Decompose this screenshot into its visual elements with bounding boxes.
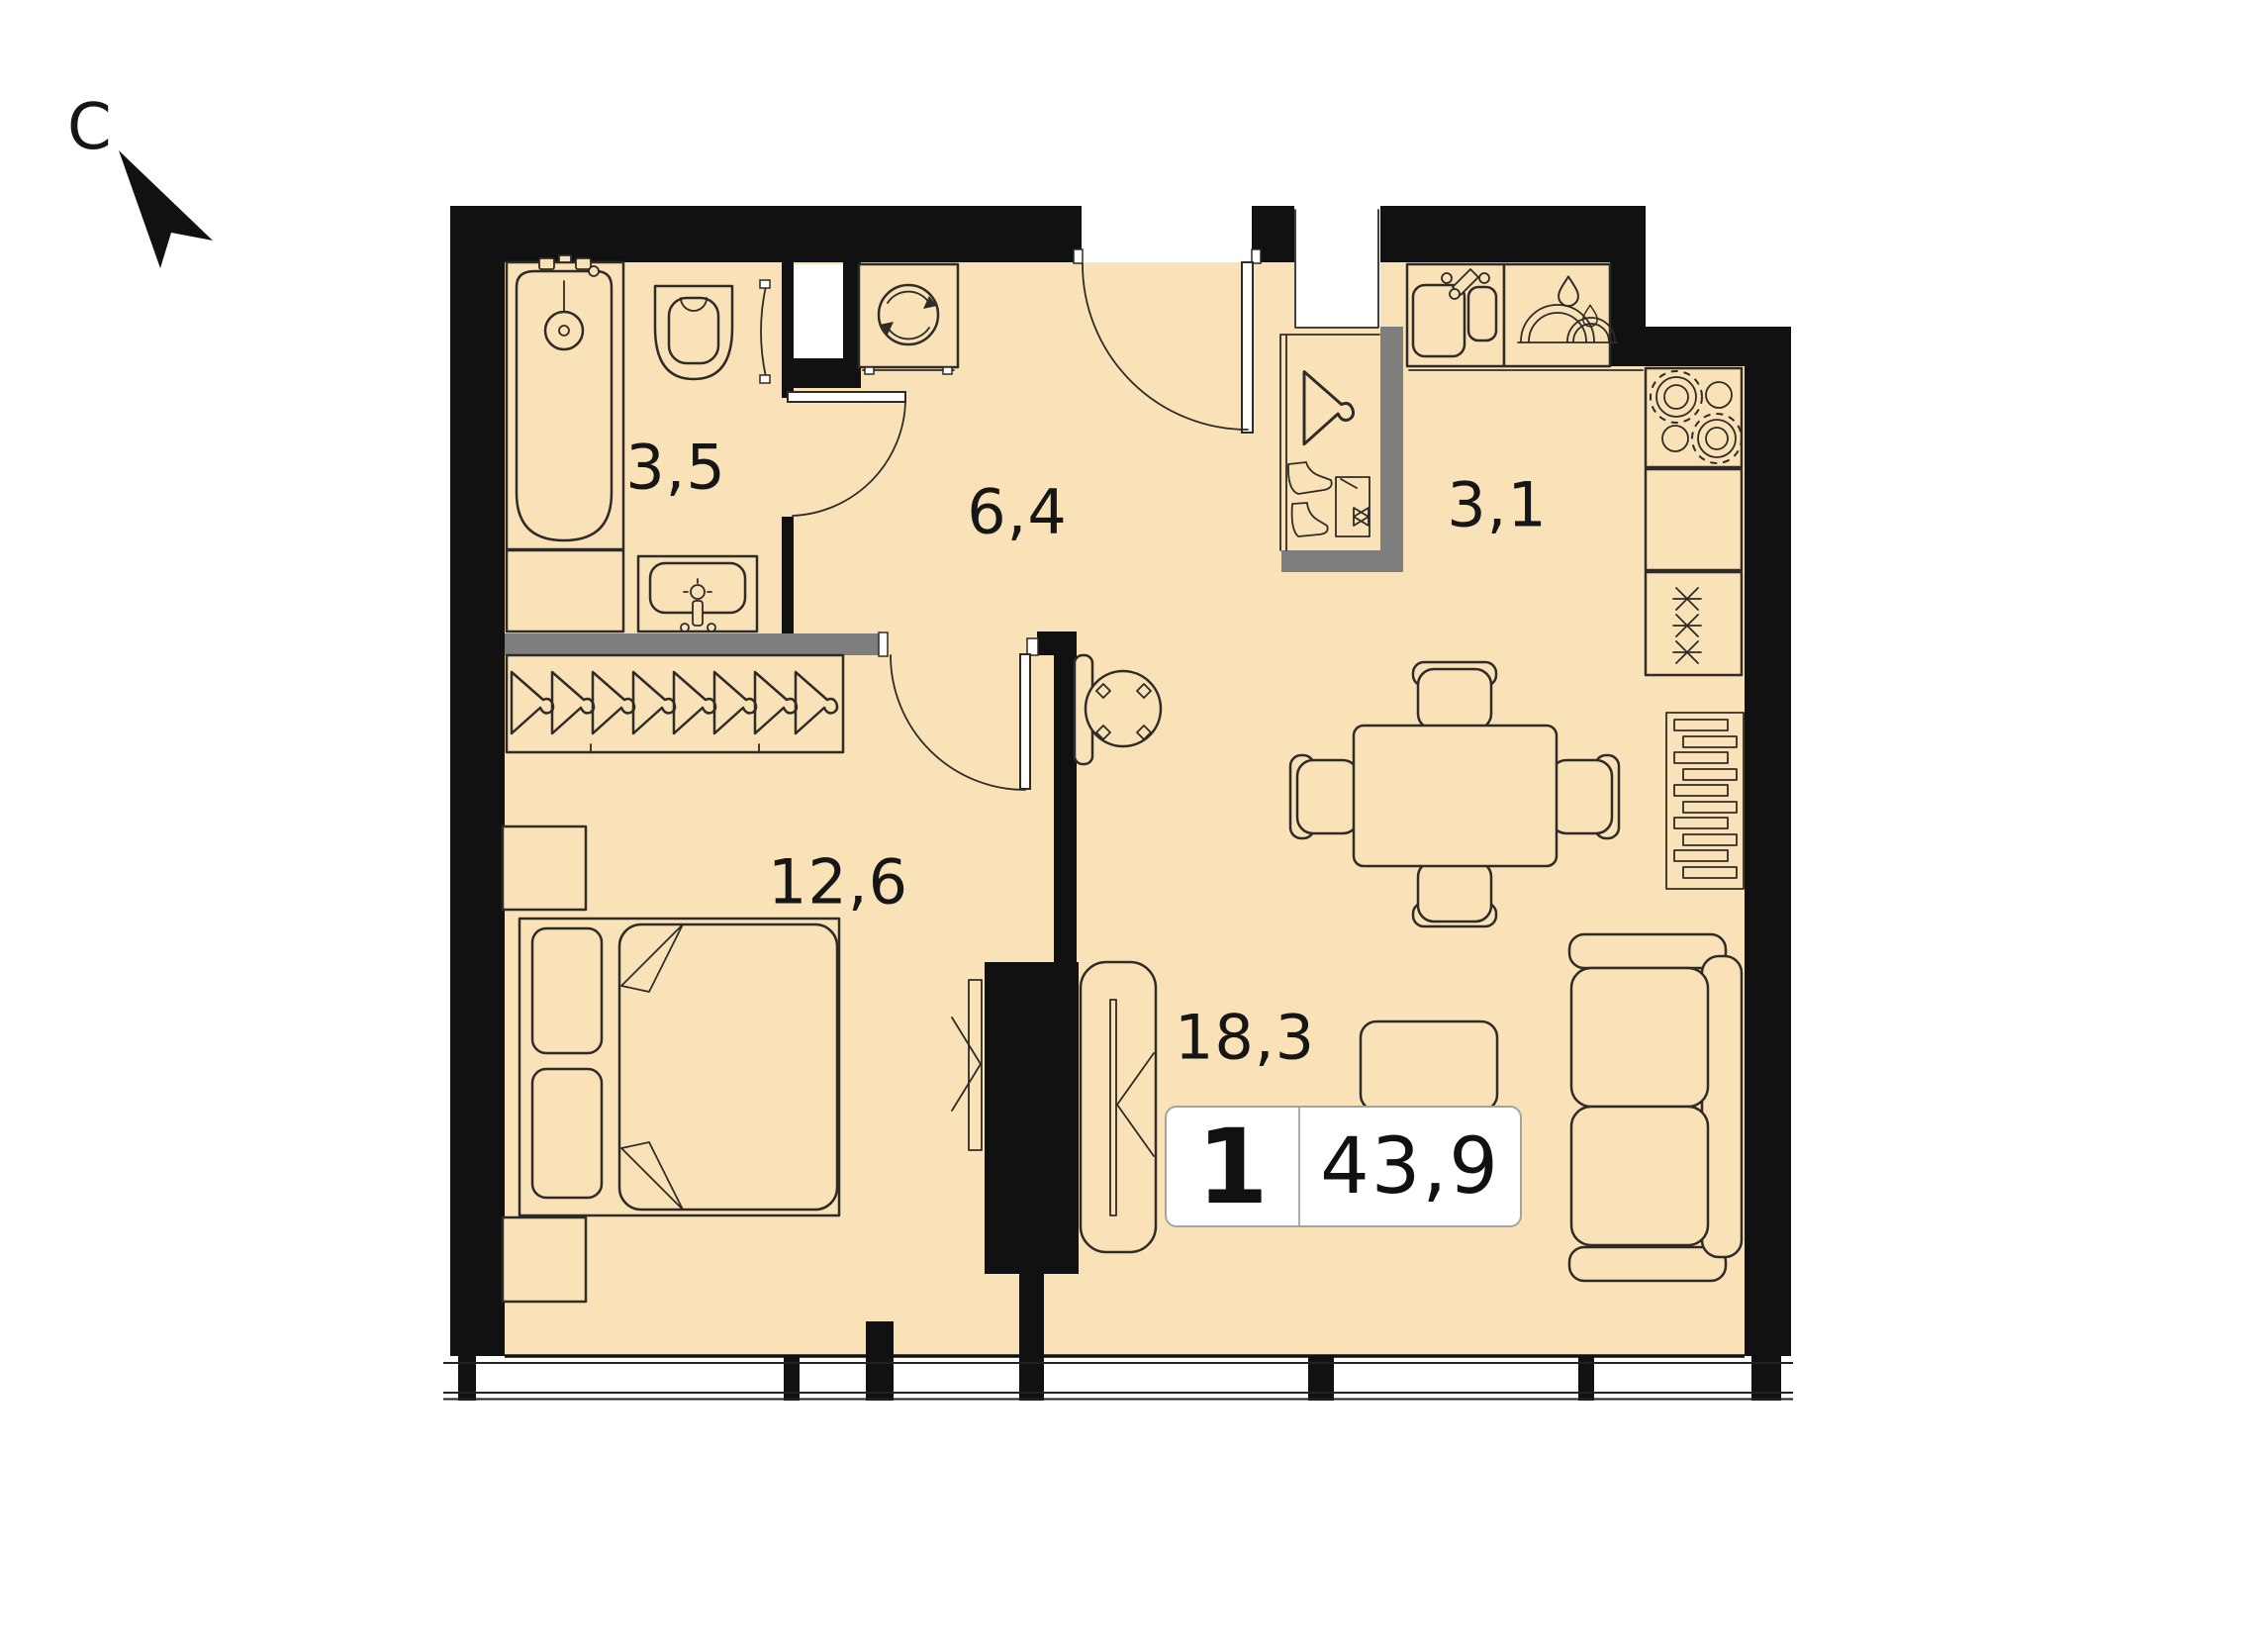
window-pier [784,1356,800,1401]
window-opening-top [1294,206,1380,329]
room-label-bathroom: 3,5 [625,432,726,504]
wall-shaft-bottom [782,358,843,388]
wall-bottom-stub [866,1321,894,1401]
north-label: С [67,91,112,164]
wall-top-b [1252,206,1294,262]
floor-plan-page: 3,5 6,4 3,1 12,6 18,3 1 43,9 С [0,0,2268,1650]
window-pier [458,1356,476,1401]
apartment-info-badge: 1 43,9 [1165,1106,1522,1227]
partition-closet-vertical [1380,327,1403,572]
north-arrow-icon [119,150,213,268]
wall-top-a [450,206,1082,262]
room-label-hallway: 6,4 [967,476,1068,548]
room-label-bedroom: 12,6 [768,846,908,919]
duct-shaft [794,264,843,358]
rooms-count: 1 [1167,1108,1300,1225]
floor-kitchen-strip [1646,366,1745,1356]
window-pier [1308,1356,1334,1401]
window-pier [1751,1356,1781,1401]
room-label-living-room: 18,3 [1175,1002,1315,1074]
wall-column-cap [1037,631,1077,655]
wall-center-strip-lower [1019,1274,1044,1401]
window-pier [1578,1356,1594,1401]
wall-center-strip [1054,655,1077,962]
wall-corner-block [1610,206,1646,366]
wall-left [450,206,505,1356]
room-label-kitchen: 3,1 [1447,469,1548,541]
total-area: 43,9 [1300,1108,1520,1225]
wall-shaft-right [843,262,861,388]
partition-closet-bottom [1281,550,1403,572]
wall-right [1745,327,1791,1356]
partition-bathroom-bottom [505,633,888,655]
wall-center-block [985,962,1079,1274]
wall-top-c [1380,206,1646,262]
wall-bathroom-right-lower [782,517,794,633]
